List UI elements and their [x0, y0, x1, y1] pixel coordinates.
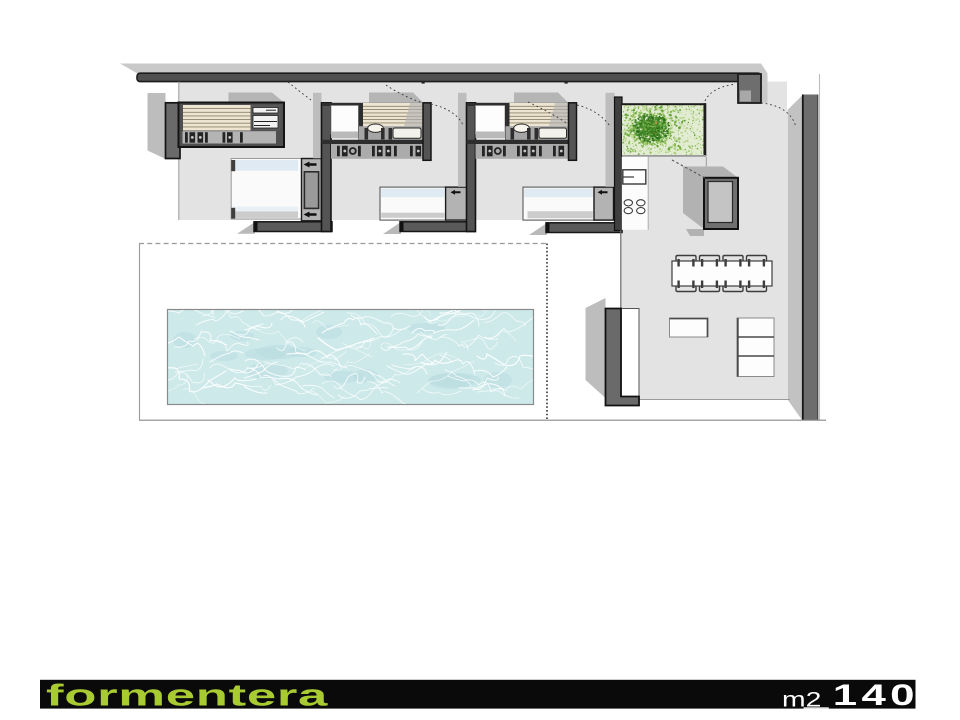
svg-text:formentera: formentera: [46, 678, 328, 712]
svg-text:_140: _140: [803, 678, 919, 712]
